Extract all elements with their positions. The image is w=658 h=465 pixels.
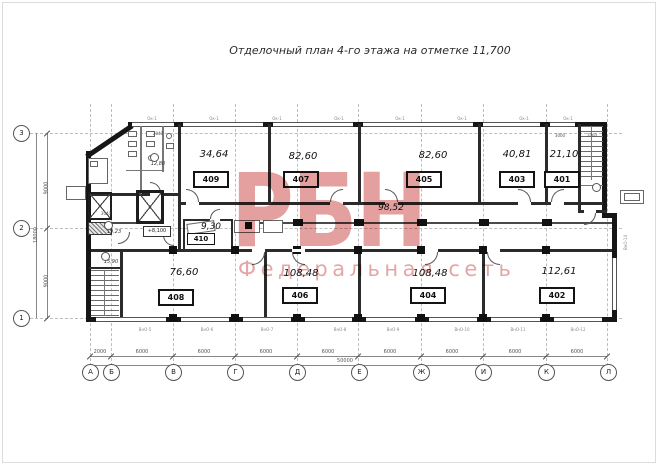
room-number: 402 (539, 287, 575, 304)
partition-wall (545, 124, 548, 204)
partition-wall (89, 267, 122, 269)
window-label: ВнО-7 (261, 327, 274, 332)
column (542, 219, 552, 226)
exterior-ledge-left (66, 186, 86, 200)
elevator-shaft (136, 190, 164, 224)
column (231, 314, 239, 322)
window-label: Ок-1 (209, 116, 219, 121)
dimension-label: 6000 (260, 349, 273, 355)
fixture (128, 131, 137, 137)
dimension-label: 6000 (571, 349, 584, 355)
dimension-label: 6000 (136, 349, 149, 355)
axis-bubble: Ж (413, 364, 430, 381)
axis-bubble: В (165, 364, 182, 381)
column (354, 314, 362, 322)
axis-bubble: Г (227, 364, 244, 381)
window-label: ВнО-10 (454, 327, 469, 332)
column (479, 314, 487, 322)
thin-wall (126, 170, 164, 171)
fixture (90, 161, 98, 167)
column (479, 219, 489, 226)
partition-wall (178, 124, 181, 249)
axis-grid-line (111, 104, 112, 366)
axis-bubble: Е (351, 364, 368, 381)
column (169, 314, 177, 322)
window-label: ВнО-11 (510, 327, 525, 332)
window-label: Ок-1 (272, 116, 282, 121)
room-number: 408 (158, 289, 194, 306)
window (612, 258, 617, 310)
window-label: ВнО-8 (334, 327, 347, 332)
window (363, 122, 473, 127)
axis-bubble: Л (600, 364, 617, 381)
room-area: 9,30 (201, 222, 221, 232)
column (542, 246, 550, 254)
watermark-tagline: Федеральная сеть (238, 257, 515, 281)
fixture (166, 133, 172, 139)
drawing-title: Отделочный план 4-го этажа на отметке 11… (170, 44, 570, 57)
window-label: Ок-1 (457, 116, 467, 121)
window (554, 317, 602, 322)
callout-bubble (101, 252, 110, 261)
axis-bubble: 1 (13, 310, 30, 327)
total-dimension: 50000 (337, 358, 353, 364)
partition-wall (183, 219, 185, 250)
left-total-dimension: 18000 (33, 227, 39, 243)
axis-bubble: И (475, 364, 492, 381)
window (305, 317, 352, 322)
window-label: ВнО-12 (570, 327, 585, 332)
window-label: Ок-1 (395, 116, 405, 121)
dimension-label: 6000 (198, 349, 211, 355)
callout-bubble (104, 221, 113, 230)
dimension-label: 3040 (101, 211, 111, 216)
dimension-line (90, 356, 607, 357)
stairs-left (91, 270, 119, 316)
window-label: Ок-1 (334, 116, 344, 121)
window (550, 122, 575, 127)
partition-wall (120, 252, 123, 317)
column (293, 314, 301, 322)
door-opening (551, 202, 564, 205)
window-label: Ок-1 (147, 116, 157, 121)
column (479, 246, 487, 254)
axis-grid-line (607, 104, 608, 366)
dimension-label: 9000 (43, 275, 49, 288)
window (491, 317, 540, 322)
room-number: 401 (544, 171, 580, 188)
column (417, 314, 425, 322)
dimension-label: 6000 (446, 349, 459, 355)
axis-bubble: К (538, 364, 555, 381)
window-label: ВнО-5 (139, 327, 152, 332)
dimension-label: 6000 (384, 349, 397, 355)
watermark-logo: РБН (231, 166, 426, 258)
dimension-label: 3000 (555, 133, 565, 138)
fixture (146, 141, 155, 147)
room-area: 76,60 (170, 267, 199, 278)
dimension-label: 2040 (153, 131, 163, 136)
window (483, 122, 540, 127)
axis-bubble: 3 (13, 125, 30, 142)
room-area: 112,61 (542, 266, 577, 277)
column (542, 314, 550, 322)
window (132, 122, 174, 127)
axis-bubble: 2 (13, 220, 30, 237)
dimension-label: 2060 (587, 133, 597, 138)
thin-wall (140, 126, 142, 194)
dimension-label: 6000 (509, 349, 522, 355)
window (243, 317, 291, 322)
fixture (128, 141, 137, 147)
callout-bubble (150, 153, 159, 162)
window-label: Ок-1 (563, 116, 573, 121)
callout-bubble (592, 183, 601, 192)
room-area: 40,81 (503, 149, 532, 160)
fixture (624, 193, 640, 201)
fixture (166, 143, 174, 149)
partition-wall (478, 124, 481, 204)
room-area: 34,64 (200, 149, 229, 160)
window-label: ВнО-9 (387, 327, 400, 332)
floor-plan-canvas: Отделочный план 4-го этажа на отметке 11… (0, 0, 658, 465)
window (273, 122, 353, 127)
axis-bubble: А (82, 364, 99, 381)
window-right-label: ВнО-14 (623, 235, 628, 250)
window (183, 122, 263, 127)
window (96, 317, 166, 322)
axis-bubble: Д (289, 364, 306, 381)
dimension-label: 6000 (322, 349, 335, 355)
room-number: 403 (499, 171, 535, 188)
room-number: 409 (193, 171, 229, 188)
thin-wall (104, 270, 105, 316)
level-mark: +8,100 (143, 226, 171, 237)
room-area: 21,10 (550, 149, 579, 160)
window (429, 317, 477, 322)
room-number: 410 (187, 233, 215, 245)
window (181, 317, 229, 322)
window-label: ВнО-6 (201, 327, 214, 332)
dimension-label: 2000 (94, 349, 107, 355)
room-number: 404 (410, 287, 446, 304)
door-opening (518, 202, 531, 205)
axis-grid-line (483, 104, 484, 366)
dimension-line (36, 133, 37, 318)
room-number: 406 (282, 287, 318, 304)
dimension-label: 9000 (43, 182, 49, 195)
window-label: Ок-1 (519, 116, 529, 121)
window (366, 317, 415, 322)
fixture (128, 151, 137, 157)
axis-bubble: Б (103, 364, 120, 381)
column (169, 246, 177, 254)
door-opening (186, 202, 199, 205)
